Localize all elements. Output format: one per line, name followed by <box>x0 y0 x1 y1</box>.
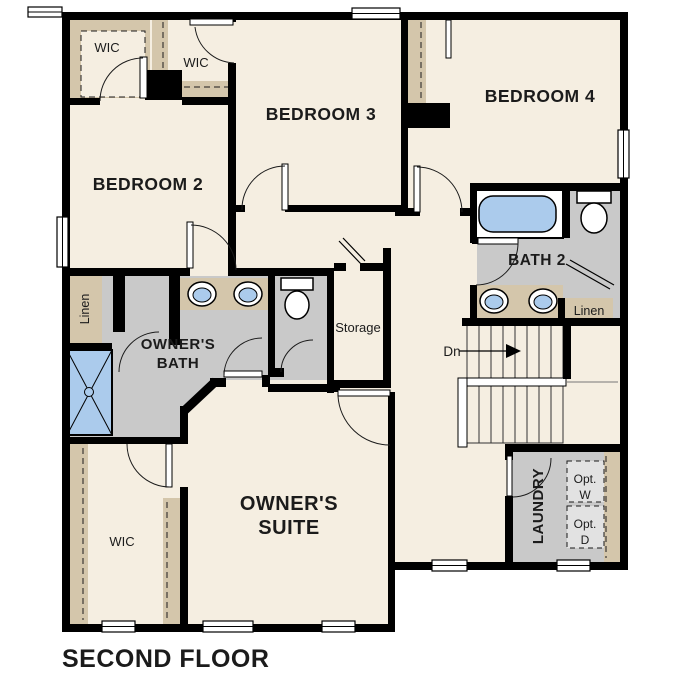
door-leaf <box>414 166 420 212</box>
wall <box>408 103 450 128</box>
bath2-label: BATH 2 <box>508 252 566 269</box>
wall <box>145 70 182 100</box>
owners-bath-label-line2: BATH <box>157 355 200 372</box>
storage-label: Storage <box>335 320 381 335</box>
wall <box>169 276 180 345</box>
wall <box>235 268 334 276</box>
door-leaf <box>224 371 262 377</box>
stairs-landing-band <box>458 378 566 386</box>
wall <box>563 183 570 238</box>
laundry-label: LAUNDRY <box>530 468 547 544</box>
wall <box>558 298 565 318</box>
wall <box>268 276 275 377</box>
wall <box>62 268 190 276</box>
wall <box>62 343 112 350</box>
bath2-tub-icon <box>479 196 556 232</box>
opt-dryer-label-line1: Opt. <box>574 517 597 531</box>
wall <box>62 98 100 105</box>
linen-owners-label: Linen <box>78 294 92 325</box>
door-leaf <box>166 444 172 487</box>
wall <box>383 248 391 388</box>
bedroom4-label: BEDROOM 4 <box>485 86 595 106</box>
owners-sink-left-basin <box>193 288 211 302</box>
wic-bedroom3-label: WIC <box>183 55 208 70</box>
wall <box>268 384 340 392</box>
door-leaf <box>282 164 288 210</box>
bedroom4-closet-shelf <box>408 20 426 103</box>
window <box>322 621 355 632</box>
window <box>28 7 62 17</box>
wall <box>470 285 477 318</box>
wall <box>505 496 513 563</box>
owners-suite-label-line1: OWNER'S <box>240 493 338 515</box>
wall <box>62 437 186 444</box>
wall <box>113 276 125 332</box>
wic-bedroom3-shelf-bottom <box>182 81 233 97</box>
window <box>203 621 253 632</box>
wall <box>327 276 334 393</box>
wic-owners-shelf-left <box>70 444 88 624</box>
shower-drain-icon <box>85 388 94 397</box>
door-leaf <box>338 390 390 396</box>
opt-dryer-label-line2: D <box>581 533 590 547</box>
wall <box>285 205 401 212</box>
owners-toilet-tank-icon <box>281 278 313 290</box>
door-leaf <box>446 20 451 58</box>
owners-sink-right-basin <box>239 288 257 302</box>
door-leaf <box>187 222 193 268</box>
wall <box>360 263 383 271</box>
wall <box>462 318 563 326</box>
door-leaf <box>478 238 518 244</box>
wall <box>505 444 620 452</box>
floor-plan-page: BEDROOM 2 BEDROOM 3 BEDROOM 4 BATH 2 OWN… <box>0 0 687 687</box>
opt-washer-label-line2: W <box>579 488 591 502</box>
wall <box>182 97 235 105</box>
owners-suite-label-line2: SUITE <box>258 517 319 539</box>
window <box>432 560 467 571</box>
wall <box>563 318 571 379</box>
bath2-toilet-bowl-icon <box>581 203 607 233</box>
door-leaf <box>140 57 147 98</box>
wall <box>470 183 628 191</box>
wall <box>395 562 628 570</box>
wall <box>62 12 628 20</box>
bedroom3-label: BEDROOM 3 <box>266 104 376 124</box>
bath2-sink-left-basin <box>485 295 503 309</box>
window <box>352 8 400 19</box>
wall <box>470 183 477 243</box>
owners-toilet-bowl-icon <box>285 291 309 319</box>
wall <box>268 368 284 377</box>
opt-washer-label-line1: Opt. <box>574 472 597 486</box>
wall <box>620 12 628 570</box>
wic-owners-label: WIC <box>109 534 134 549</box>
plan-title: SECOND FLOOR <box>62 645 269 673</box>
window <box>557 560 590 571</box>
wall <box>401 12 408 212</box>
wic-bedroom2-label: WIC <box>94 40 119 55</box>
wic-owners-shelf-right <box>163 498 180 624</box>
wall <box>180 487 188 624</box>
linen-bath2-label: Linen <box>574 304 605 318</box>
wall <box>334 263 346 271</box>
wall <box>388 392 395 632</box>
bath2-toilet-tank-icon <box>577 191 611 203</box>
wall <box>228 63 236 276</box>
door-leaf <box>507 456 512 496</box>
wic-bedroom3-shelf-left <box>152 20 168 70</box>
bedroom2-label: BEDROOM 2 <box>93 174 203 194</box>
window <box>102 621 135 632</box>
owners-bath-label-line1: OWNER'S <box>141 336 216 353</box>
window <box>618 130 629 178</box>
door-leaf <box>190 19 233 25</box>
floor-plan-drawing: BEDROOM 2 BEDROOM 3 BEDROOM 4 BATH 2 OWN… <box>0 0 687 687</box>
bath2-sink-right-basin <box>534 295 552 309</box>
stairs-dn-label: Dn <box>443 344 460 359</box>
window <box>57 217 68 267</box>
stairs-stringer <box>458 378 467 447</box>
